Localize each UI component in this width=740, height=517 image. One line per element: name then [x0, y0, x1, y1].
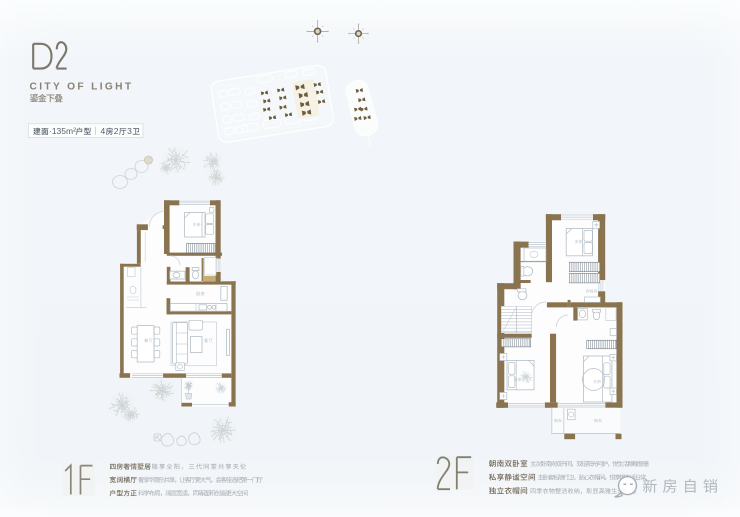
- svg-text:4: 4: [101, 126, 106, 136]
- svg-text:3: 3: [127, 126, 132, 136]
- svg-text:·135m²: ·135m²: [49, 126, 76, 136]
- svg-text:CITY OF LIGHT: CITY OF LIGHT: [30, 81, 134, 92]
- svg-text:2: 2: [114, 126, 119, 136]
